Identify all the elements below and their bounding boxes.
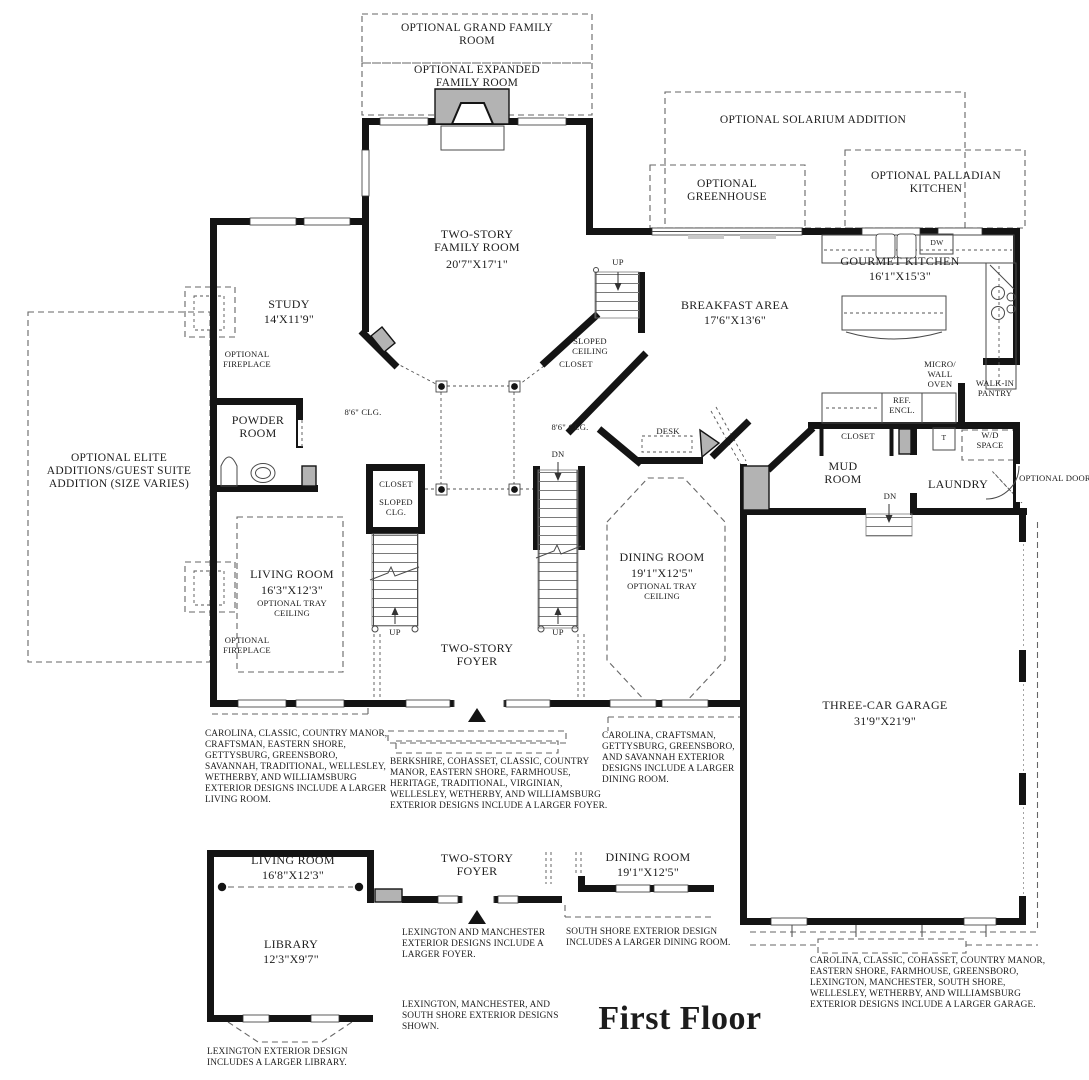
dn-mud-label: DN (884, 492, 897, 502)
up-back-label: UP (612, 258, 623, 268)
closet-mud-label: CLOSET (841, 432, 875, 442)
chimney-block (743, 466, 769, 510)
dw-label: DW (930, 239, 943, 247)
optional-greenhouse-label: OPTIONAL GREENHOUSE (668, 178, 786, 204)
family-room-label: TWO-STORY FAMILY ROOM (417, 228, 537, 255)
gourmet-kitchen-dims: 16'1"X15'3" (869, 270, 931, 283)
larger-living-room-note: CAROLINA, CLASSIC, COUNTRY MANOR, CRAFTS… (205, 729, 391, 806)
foyer-label: TWO-STORY FOYER (423, 642, 531, 669)
optional-grand-family-room-label: OPTIONAL GRAND FAMILY ROOM (385, 22, 570, 48)
larger-foyer-note: BERKSHIRE, COHASSET, CLASSIC, COUNTRY MA… (390, 757, 610, 812)
library-label: LIBRARY (264, 938, 318, 951)
front-door-marker (468, 708, 486, 722)
alt-living-room-dims: 16'8"X12'3" (262, 869, 324, 882)
desk-label: DESK (656, 427, 679, 437)
fixtures (221, 89, 1019, 937)
up-left-label: UP (389, 628, 400, 638)
alt-front-door-marker (468, 910, 486, 924)
larger-library-note: LEXINGTON EXTERIOR DESIGN INCLUDES A LAR… (207, 1047, 375, 1069)
tub-label: T (942, 434, 947, 442)
dining-room-tray-label: OPTIONAL TRAY CEILING (621, 582, 703, 602)
study-label: STUDY (268, 298, 310, 311)
designs-shown-note: LEXINGTON, MANCHESTER, AND SOUTH SHORE E… (402, 1000, 560, 1033)
pantry-label: WALK-IN PANTRY (964, 379, 1026, 399)
garage-label: THREE-CAR GARAGE (822, 699, 947, 712)
library-dims: 12'3"X9'7" (263, 953, 319, 966)
alt-dining-room-dims: 19'1"X12'5" (617, 866, 679, 879)
alt-dining-room-label: DINING ROOM (606, 851, 691, 864)
garage-dims: 31'9"X21'9" (854, 715, 916, 728)
optional-palladian-kitchen-label: OPTIONAL PALLADIAN KITCHEN (847, 170, 1025, 196)
family-room-dims: 20'7"X17'1" (446, 258, 508, 271)
laundry-label: LAUNDRY (928, 478, 988, 491)
up-right-label: UP (552, 628, 563, 638)
wd-space-label: W/D SPACE (969, 431, 1011, 451)
dn-foyer-label: DN (552, 450, 565, 460)
dining-room-dims: 19'1"X12'5" (631, 567, 693, 580)
gourmet-kitchen-label: GOURMET KITCHEN (840, 255, 959, 268)
mud-closet-door (899, 429, 911, 454)
breakfast-area-dims: 17'6"X13'6" (704, 314, 766, 327)
alt-larger-dining-note: SOUTH SHORE EXTERIOR DESIGN INCLUDES A L… (566, 927, 746, 949)
optional-fireplace-living-label: OPTIONAL FIREPLACE (211, 636, 283, 656)
optional-door-label: OPTIONAL DOOR (1018, 474, 1089, 484)
optional-solarium-label: OPTIONAL SOLARIUM ADDITION (720, 114, 906, 127)
ref-encl-label: REF. ENCL. (881, 396, 923, 416)
breakfast-area-label: BREAKFAST AREA (681, 299, 789, 312)
mud-room-label: MUD ROOM (814, 460, 872, 487)
living-room-label: LIVING ROOM (250, 568, 334, 581)
alt-foyer-door (375, 889, 402, 902)
powder-room-label: POWDER ROOM (218, 414, 298, 441)
living-room-tray-label: OPTIONAL TRAY CEILING (251, 599, 333, 619)
living-room-dims: 16'3"X12'3" (261, 584, 323, 597)
larger-garage-note: CAROLINA, CLASSIC, COHASSET, COUNTRY MAN… (810, 956, 1052, 1011)
alt-foyer-label: TWO-STORY FOYER (423, 852, 531, 879)
optional-fireplace-study-label: OPTIONAL FIREPLACE (211, 350, 283, 370)
page-title: First Floor (598, 1000, 761, 1038)
dining-room-label: DINING ROOM (620, 551, 705, 564)
optional-elite-additions-label: OPTIONAL ELITE ADDITIONS/GUEST SUITE ADD… (46, 452, 192, 492)
alt-larger-foyer-note: LEXINGTON AND MANCHESTER EXTERIOR DESIGN… (402, 928, 580, 961)
micro-wall-oven-label: MICRO/ WALL OVEN (917, 360, 963, 390)
optional-expanded-family-room-label: OPTIONAL EXPANDED FAMILY ROOM (397, 64, 557, 90)
larger-dining-note: CAROLINA, CRAFTSMAN, GETTYSBURG, GREENSB… (602, 731, 754, 786)
sloped-ceiling-label: SLOPED CEILING (562, 337, 618, 357)
sloped-clg-label: SLOPED CLG. (370, 498, 422, 518)
clg-86-left-label: 8'6" CLG. (345, 408, 382, 418)
clg-86-right-label: 8'6" CLG. (552, 423, 589, 433)
first-floor-plan: OPTIONAL GRAND FAMILY ROOM OPTIONAL EXPA… (0, 0, 1089, 1080)
powder-door (302, 466, 316, 486)
closet-stair-label: CLOSET (379, 480, 413, 490)
alt-living-room-label: LIVING ROOM (251, 854, 335, 867)
floorplan-drawing (0, 0, 1089, 1080)
study-dims: 14'X11'9" (264, 313, 314, 326)
closet-corridor-label: CLOSET (559, 360, 593, 370)
